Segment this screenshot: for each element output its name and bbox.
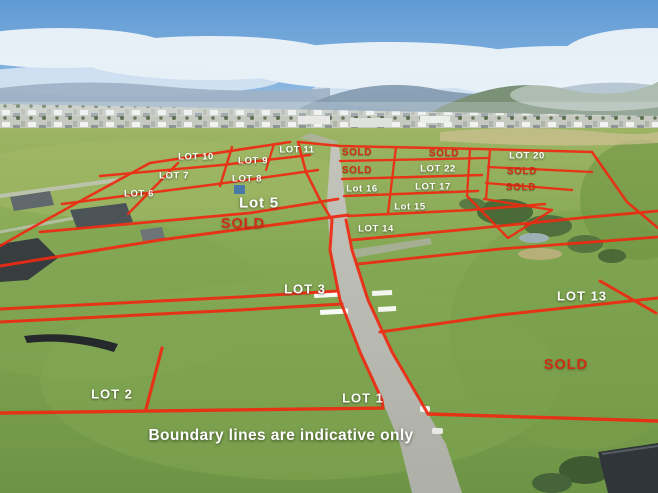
aerial-subdivision-photo: Boundary lines are indicative only LOT 1… xyxy=(0,0,658,493)
photo-background xyxy=(0,0,658,493)
